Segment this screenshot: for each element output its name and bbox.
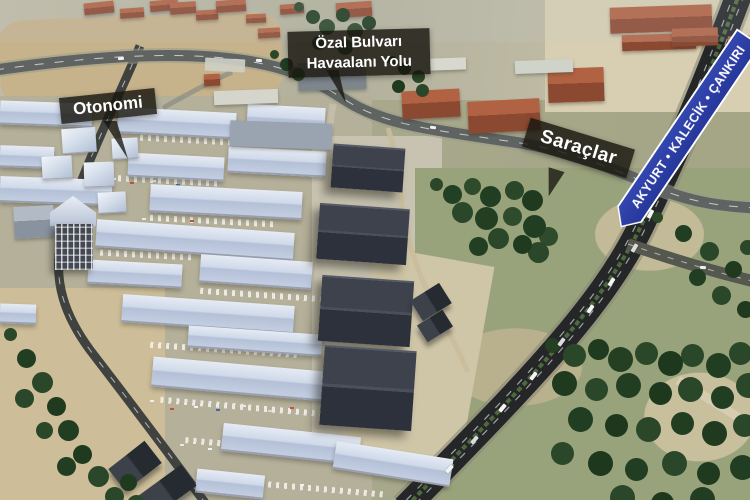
pavilion-building: [61, 127, 97, 154]
pavilion-building: [97, 191, 126, 213]
red-roof-building: [204, 74, 221, 87]
warehouse-building: [227, 146, 326, 177]
parked-cars: [150, 400, 154, 402]
gray-building: [214, 89, 278, 105]
label-ozal-bulvari: Özal Bulvarı Havaalanı Yolu: [287, 28, 430, 77]
vehicle: [118, 57, 124, 60]
label-line2: Havaalanı Yolu: [290, 51, 428, 74]
tree-cluster: [430, 178, 443, 191]
hangar-building: [319, 345, 416, 431]
office-wing-building: [13, 205, 55, 239]
red-roof-building: [401, 89, 460, 120]
warehouse-building: [87, 260, 182, 289]
gray-building: [515, 59, 573, 74]
dirt-path-bottomright: [678, 380, 750, 426]
gray-building: [230, 120, 333, 150]
vehicle: [700, 266, 706, 270]
pavilion-building: [111, 137, 138, 159]
hangar-building: [316, 203, 410, 265]
tree-row: [4, 328, 17, 341]
pavilion-building: [41, 155, 72, 180]
pavilion-building: [84, 161, 115, 187]
gray-building: [430, 57, 466, 70]
office-tower-facade: [55, 224, 93, 270]
aerial-map-viewport[interactable]: Özal Bulvarı Havaalanı Yolu Otonomi Sara…: [0, 0, 750, 500]
tree-cluster: [270, 50, 279, 59]
overpass-bridge: [205, 64, 245, 66]
vehicle: [256, 59, 262, 62]
warehouse-building: [127, 153, 224, 182]
hangar-building: [318, 275, 414, 347]
vehicle: [430, 126, 436, 130]
highway-branch-east: [628, 244, 750, 281]
warehouse-building: [0, 303, 36, 324]
tree-cluster: [652, 212, 663, 223]
hangar-building: [331, 144, 406, 193]
